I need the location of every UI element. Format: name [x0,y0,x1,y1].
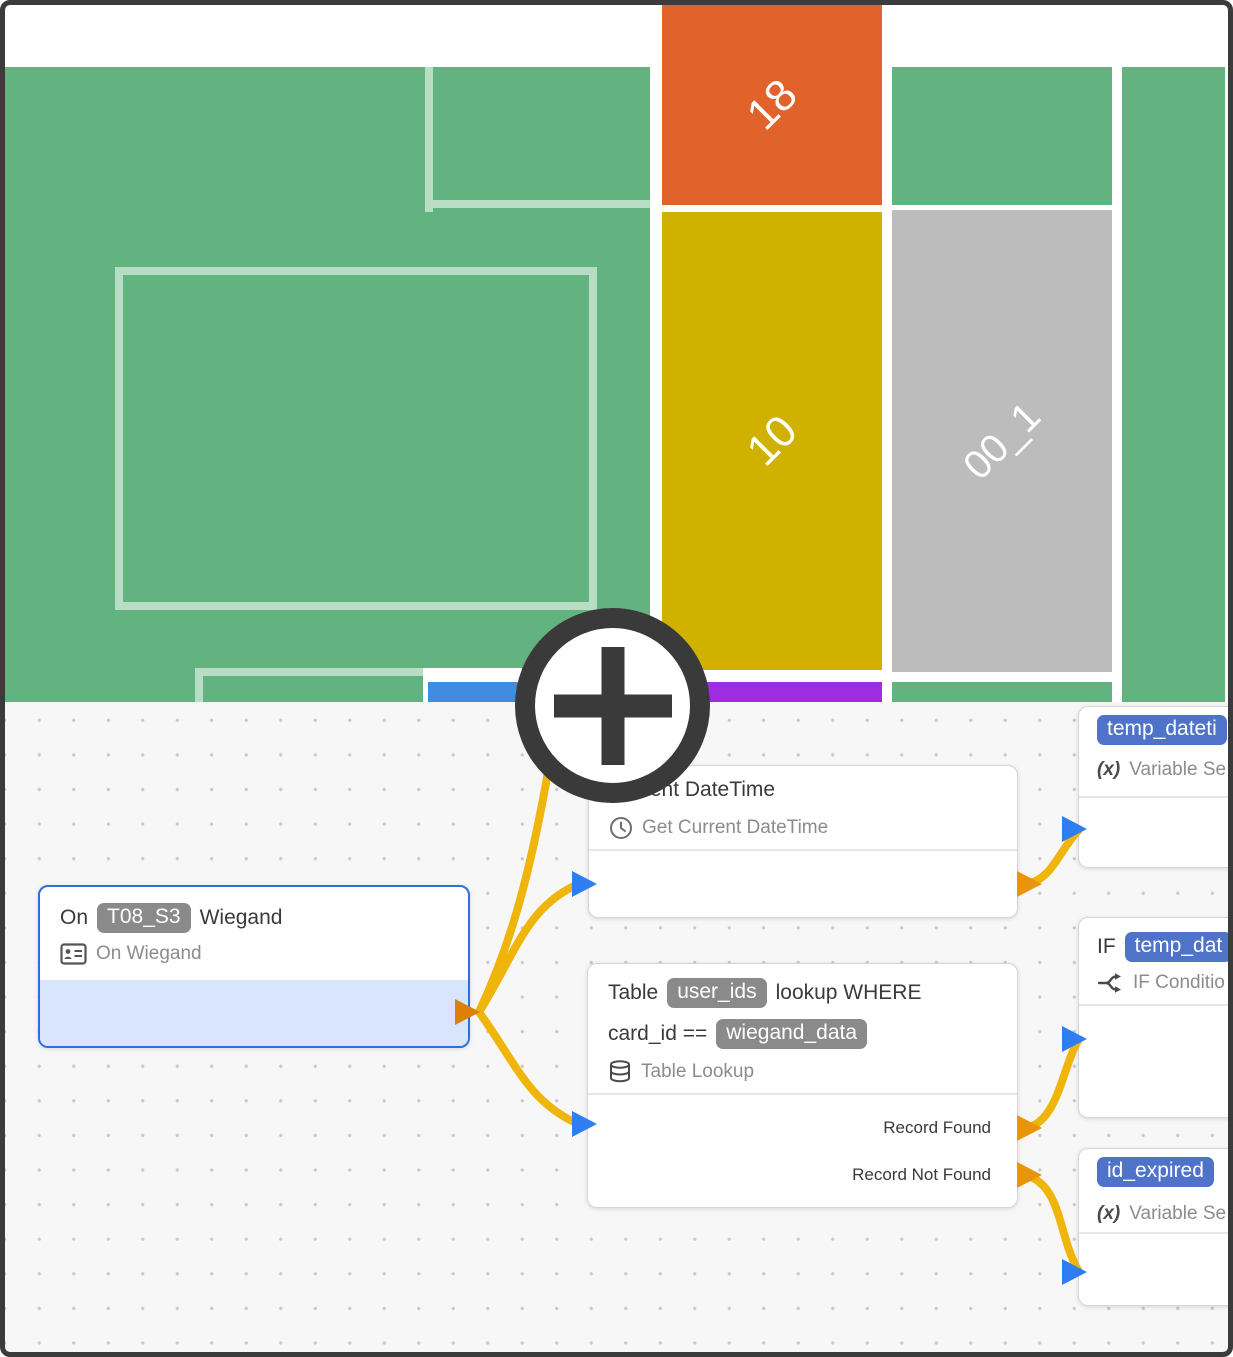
node-divider [589,849,1017,851]
table-chip[interactable]: user_ids [667,978,766,1008]
variable-set-icon: (x) [1097,1203,1120,1225]
screenshot-stage: 18 10 00_1 On T08_S3 Wiegand [0,0,1233,1357]
node-if-subtitle: IF Conditio [1133,972,1225,994]
node-on-wiegand-title-prefix: On [60,906,88,930]
treemap-cell-green-rightcol[interactable] [1122,67,1225,707]
node-temp-datetime-subtitle: Variable Se [1129,759,1226,781]
output-label-record-not-found: Record Not Found [852,1165,991,1185]
treemap-cell-green-topright[interactable] [892,67,1112,205]
treemap-block-00-1-label: 00_1 [955,394,1050,489]
treemap-block-10-label: 10 [737,406,807,476]
treemap-panel: 18 10 00_1 [5,5,1228,702]
variable-chip[interactable]: temp_dat [1125,932,1233,962]
node-id-expired-variable[interactable]: id_expired (x) Variable Se [1078,1148,1233,1306]
id-card-icon [60,943,87,965]
node-table-lookup-title-2: lookup WHERE [776,981,922,1005]
node-on-wiegand[interactable]: On T08_S3 Wiegand On Wiegand [38,885,470,1048]
node-table-lookup-subtitle: Table Lookup [641,1061,754,1083]
node-divider [588,1093,1017,1095]
treemap-block-00-1[interactable]: 00_1 [892,210,1112,672]
branch-icon [1097,972,1124,994]
node-divider [1079,796,1233,798]
node-id-expired-subtitle: Variable Se [1129,1203,1226,1225]
node-on-wiegand-title-suffix: Wiegand [200,906,283,930]
clock-icon [609,816,633,840]
node-table-lookup[interactable]: Table user_ids lookup WHERE card_id == w… [587,963,1018,1208]
node-divider [1079,1232,1233,1234]
node-table-lookup-title-1: Table [608,981,658,1005]
node-if-prefix: IF [1097,935,1116,959]
variable-chip[interactable]: temp_dateti [1097,715,1227,745]
treemap-divider-vertical [425,67,433,212]
treemap-block-18-label: 18 [737,70,807,140]
treemap-block-10[interactable]: 10 [662,212,882,670]
device-chip[interactable]: T08_S3 [97,903,191,933]
node-if-condition[interactable]: IF temp_dat IF Conditio [1078,917,1233,1118]
variable-set-icon: (x) [1097,759,1120,781]
treemap-gap [428,668,522,682]
variable-chip[interactable]: wiegand_data [716,1019,867,1049]
treemap-cell-outline [115,267,597,610]
node-on-wiegand-body [40,980,468,1046]
variable-chip[interactable]: id_expired [1097,1157,1214,1187]
treemap-divider-horizontal [425,200,650,208]
node-current-datetime-subtitle: Get Current DateTime [642,817,828,839]
treemap-cell-outline-bottom-h [195,668,423,676]
node-table-lookup-title-3: card_id == [608,1022,707,1046]
node-divider [1079,1004,1233,1006]
zoom-plus-icon [515,608,710,803]
node-on-wiegand-subtitle: On Wiegand [96,943,202,965]
database-icon [608,1060,632,1083]
plus-vertical-bar [601,647,624,765]
treemap-block-18[interactable]: 18 [662,5,882,205]
node-temp-datetime-variable[interactable]: temp_dateti (x) Variable Se [1078,706,1233,868]
output-label-record-found: Record Found [883,1118,991,1138]
